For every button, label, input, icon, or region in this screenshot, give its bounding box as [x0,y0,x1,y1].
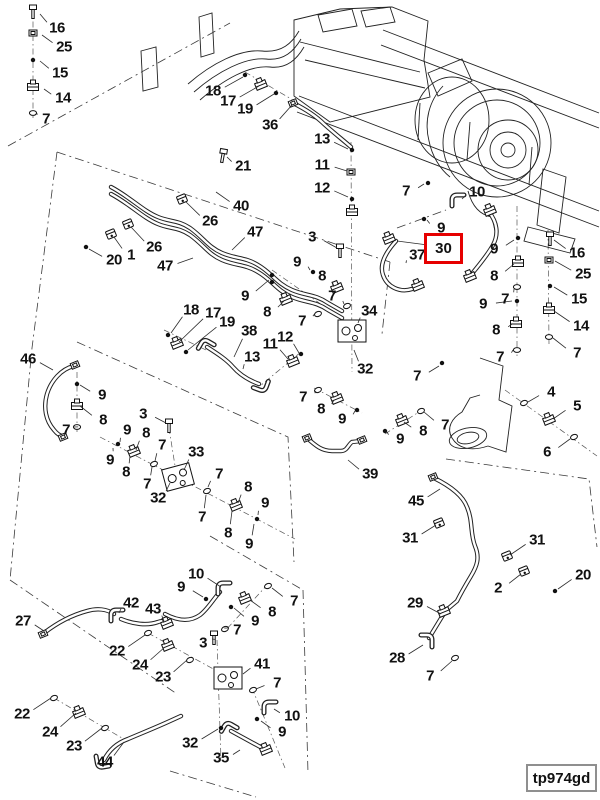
callout-9[interactable]: 9 [479,297,487,312]
callout-2[interactable]: 2 [494,581,502,596]
callout-34[interactable]: 34 [361,304,377,319]
dot-part [273,90,279,96]
nut-part [347,169,355,175]
callout-7[interactable]: 7 [299,390,307,405]
callout-41[interactable]: 41 [254,657,270,672]
callout-4[interactable]: 4 [547,385,555,400]
callout-26[interactable]: 26 [202,214,218,229]
bolt-part [337,244,344,258]
callout-9[interactable]: 9 [241,289,249,304]
callout-29[interactable]: 29 [407,596,423,611]
callout-9[interactable]: 9 [251,614,259,629]
callout-8[interactable]: 8 [224,526,232,541]
dot-part [254,716,260,722]
callout-7[interactable]: 7 [426,669,434,684]
engine-frame-artwork [141,7,599,227]
bolt-part [547,232,554,246]
callout-24[interactable]: 24 [132,658,148,673]
dot-part [254,516,260,522]
callout-7[interactable]: 7 [198,510,206,525]
callout-19[interactable]: 19 [219,315,235,330]
dot-part [425,180,431,186]
callout-43[interactable]: 43 [145,602,161,617]
callout-7[interactable]: 7 [62,423,70,438]
callout-7[interactable]: 7 [215,467,223,482]
callout-44[interactable]: 44 [97,755,113,770]
ring-part [513,348,520,353]
dot-part [514,298,520,304]
hose-45 [434,478,478,612]
callout-40[interactable]: 40 [233,199,249,214]
callout-7[interactable]: 7 [402,184,410,199]
hose-mid [165,592,220,620]
callout-8[interactable]: 8 [317,402,325,417]
callout-8[interactable]: 8 [142,426,150,441]
callout-24[interactable]: 24 [42,725,58,740]
dot-part [203,596,209,602]
dot-part [439,360,445,366]
elbow-part [452,195,464,206]
callout-7[interactable]: 7 [441,418,449,433]
callout-47[interactable]: 47 [157,259,173,274]
callout-23[interactable]: 23 [66,739,82,754]
section-boundary-lines [8,23,597,797]
callout-8[interactable]: 8 [263,305,271,320]
callout-9[interactable]: 9 [98,388,106,403]
fit-part [258,741,272,755]
callout-15[interactable]: 15 [52,66,68,81]
callout-42[interactable]: 42 [123,596,139,611]
callout-11[interactable]: 11 [263,337,278,352]
callout-6[interactable]: 6 [543,445,551,460]
callout-8[interactable]: 8 [490,269,498,284]
valve-part [214,667,242,689]
callout-47[interactable]: 47 [247,225,263,240]
callout-28[interactable]: 28 [389,651,405,666]
fit-part [278,291,292,305]
ring-part [29,111,36,116]
fit-part [126,443,140,457]
callout-11[interactable]: 11 [315,158,330,173]
callout-22[interactable]: 22 [109,644,125,659]
callout-7[interactable]: 7 [233,623,241,638]
dot-part [165,332,171,338]
callout-3[interactable]: 3 [199,636,207,651]
callout-12[interactable]: 12 [314,181,330,196]
callout-9[interactable]: 9 [106,453,114,468]
ring-part [520,399,528,406]
callout-38[interactable]: 38 [241,324,257,339]
fit-part [228,497,242,511]
callout-9[interactable]: 9 [245,537,253,552]
callout-33[interactable]: 33 [188,445,204,460]
elbow-part [264,702,276,713]
bolt-part [211,631,218,645]
callout-21[interactable]: 21 [235,159,251,174]
valve-part [338,320,366,342]
callout-20[interactable]: 20 [106,253,122,268]
fit-part [72,399,83,410]
dot-part [30,57,36,63]
callout-22[interactable]: 22 [14,707,30,722]
callout-13[interactable]: 13 [314,132,330,147]
fit-part [544,303,555,314]
nut-part [70,361,80,370]
callout-9[interactable]: 9 [338,412,346,427]
callout-46[interactable]: 46 [20,352,36,367]
hoses-and-pipes [44,103,496,760]
dot-part [310,269,316,275]
callout-15[interactable]: 15 [571,292,587,307]
callout-10[interactable]: 10 [188,567,204,582]
callout-10[interactable]: 10 [284,709,300,724]
bolt-part [30,5,37,19]
callout-18[interactable]: 18 [183,303,199,318]
ring-part [570,433,578,440]
callout-8[interactable]: 8 [122,465,130,480]
support-bracket-artwork [447,358,512,452]
clamp-part [501,551,512,562]
ring-part [101,724,109,731]
callout-8[interactable]: 8 [492,323,500,338]
callout-12[interactable]: 12 [277,330,293,345]
dot-part [421,216,427,222]
callout-3[interactable]: 3 [139,407,147,422]
callout-27[interactable]: 27 [15,614,31,629]
callout-19[interactable]: 19 [237,102,253,117]
callout-32[interactable]: 32 [357,362,373,377]
fit-part [511,317,522,328]
callout-8[interactable]: 8 [318,269,326,284]
callout-35[interactable]: 35 [213,751,229,766]
callout-36[interactable]: 36 [262,118,278,133]
nut-part [38,630,48,639]
ring-part [314,310,322,317]
nut-part [29,30,37,36]
elbow-part [218,583,230,594]
callout-1[interactable]: 1 [127,248,135,263]
highlighted-callout-30[interactable]: 30 [424,233,463,264]
nut-part [357,436,367,445]
callout-14[interactable]: 14 [573,319,589,334]
callout-9[interactable]: 9 [123,423,131,438]
fit-part [394,412,408,426]
callout-7[interactable]: 7 [501,292,509,307]
clamp-part [433,518,444,529]
callout-8[interactable]: 8 [268,605,276,620]
callout-9[interactable]: 9 [490,242,498,257]
dot-part [547,283,553,289]
callout-7[interactable]: 7 [273,676,281,691]
callout-8[interactable]: 8 [99,413,107,428]
fit-part [347,205,358,216]
fit-part [169,335,183,349]
ring-part [417,407,425,414]
dot-part [228,604,234,610]
callout-7[interactable]: 7 [573,346,581,361]
callout-26[interactable]: 26 [146,240,162,255]
callout-9[interactable]: 9 [396,432,404,447]
callout-8[interactable]: 8 [244,480,252,495]
callout-31[interactable]: 31 [402,531,418,546]
callout-8[interactable]: 8 [419,424,427,439]
callout-13[interactable]: 13 [244,350,260,365]
figure-id-label: tp974gd [526,764,597,792]
ring-part [451,654,459,661]
callout-9[interactable]: 9 [261,496,269,511]
callout-32[interactable]: 32 [150,491,166,506]
callout-39[interactable]: 39 [362,467,378,482]
dot-part [298,351,304,357]
ring-part [50,694,58,701]
dot-part [354,407,360,413]
ring-part [186,656,194,663]
callout-45[interactable]: 45 [408,494,424,509]
clamp-part [176,194,187,205]
nut-part [545,257,553,263]
callout-7[interactable]: 7 [298,314,306,329]
callout-7[interactable]: 7 [158,438,166,453]
ring-part [221,625,229,632]
fit-part [28,80,39,91]
dot-part [349,196,355,202]
callout-3[interactable]: 3 [308,230,316,245]
callout-9[interactable]: 9 [293,255,301,270]
fit-part [237,590,251,604]
callout-32[interactable]: 32 [182,736,198,751]
callout-9[interactable]: 9 [278,725,286,740]
callout-9[interactable]: 9 [177,580,185,595]
parts-diagram-page: 1625151471817193613111271093798798716251… [0,0,600,800]
callout-18[interactable]: 18 [205,84,221,99]
callout-7[interactable]: 7 [413,369,421,384]
ring-part [249,686,257,693]
callout-7[interactable]: 7 [42,112,50,127]
callout-31[interactable]: 31 [529,533,545,548]
callout-7[interactable]: 7 [496,350,504,365]
callout-37[interactable]: 37 [409,248,425,263]
callout-20[interactable]: 20 [575,568,591,583]
callout-10[interactable]: 10 [469,185,485,200]
fit-part [71,704,85,718]
dot-part [74,381,80,387]
valve-part [162,463,195,491]
callout-16[interactable]: 16 [49,21,65,36]
dot-part [83,244,89,250]
ring-part [203,487,211,494]
callout-16[interactable]: 16 [569,246,585,261]
bolt-part [218,148,227,163]
ring-part [144,629,152,636]
ring-part [545,335,552,340]
callout-7[interactable]: 7 [328,289,336,304]
ring-part [264,582,272,589]
callout-17[interactable]: 17 [220,94,236,109]
callout-5[interactable]: 5 [573,399,581,414]
dot-part [515,235,521,241]
callout-14[interactable]: 14 [55,91,71,106]
callout-23[interactable]: 23 [155,670,171,685]
ring-part [513,285,520,290]
dot-part [552,588,558,594]
fit-part [513,256,524,267]
callout-7[interactable]: 7 [290,594,298,609]
callout-25[interactable]: 25 [56,40,72,55]
bolt-part [166,419,173,433]
callout-25[interactable]: 25 [575,267,591,282]
